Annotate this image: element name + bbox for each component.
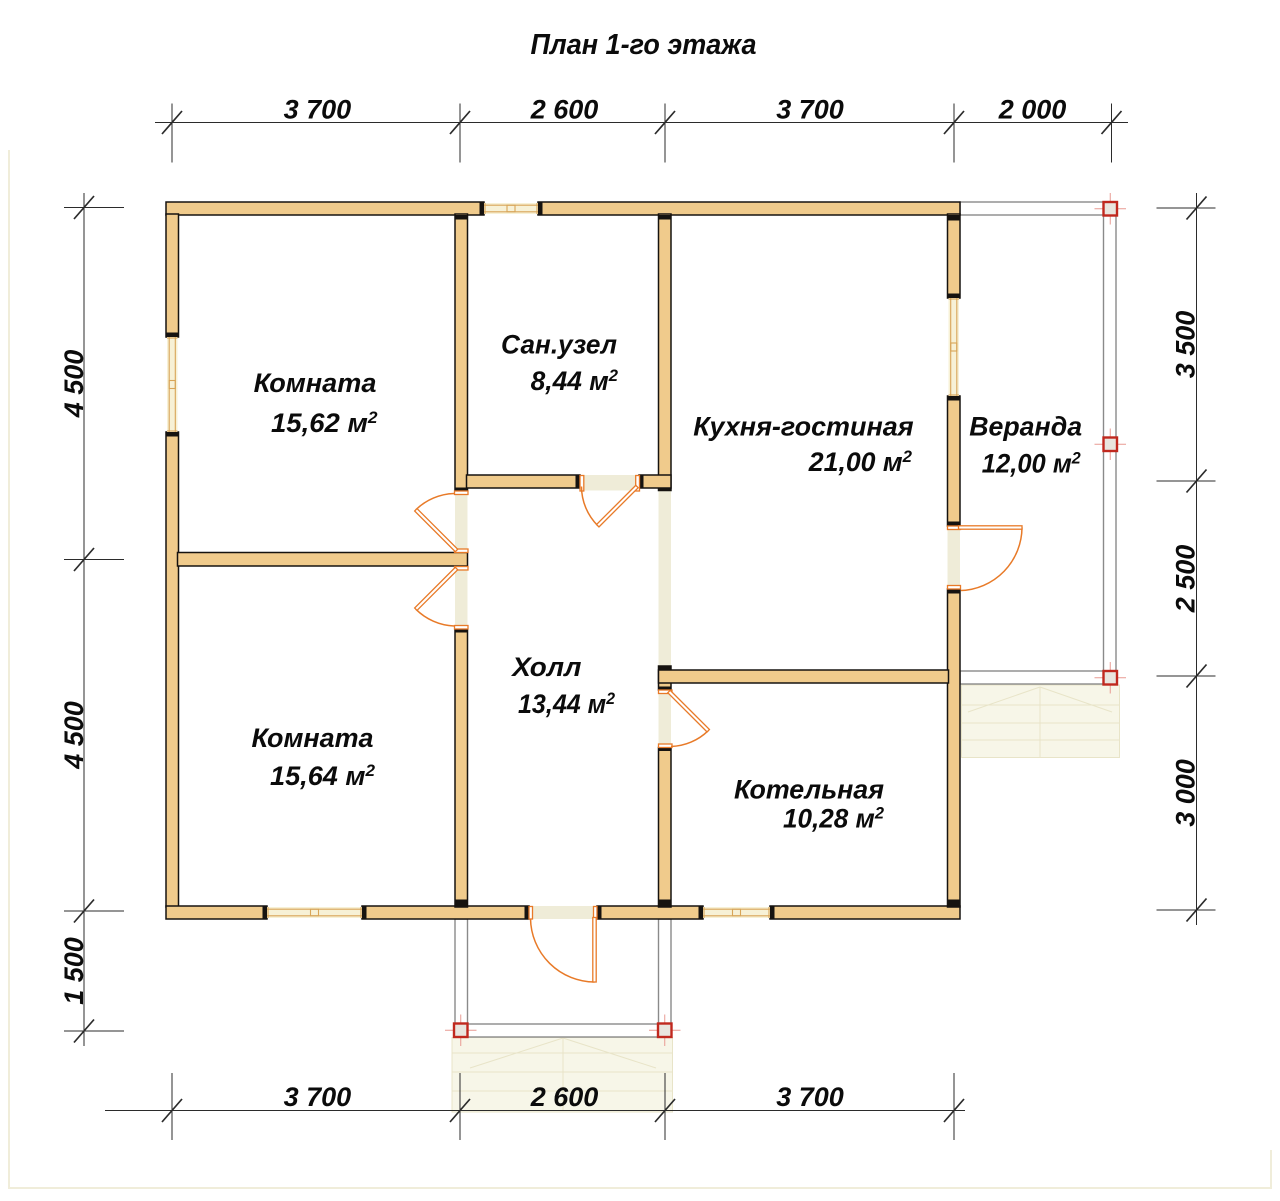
svg-text:3 700: 3 700 [284, 1082, 352, 1112]
svg-text:Сан.узел: Сан.узел [501, 330, 617, 360]
svg-text:4 500: 4 500 [59, 350, 89, 419]
svg-text:15,62 м2: 15,62 м2 [271, 408, 378, 438]
svg-text:1 500: 1 500 [59, 937, 89, 1005]
svg-text:2 600: 2 600 [530, 1082, 599, 1112]
svg-text:Веранда: Веранда [969, 412, 1082, 442]
svg-text:3 700: 3 700 [776, 1082, 844, 1112]
svg-text:План 1-го этажа: План 1-го этажа [531, 29, 757, 61]
svg-text:2 500: 2 500 [1171, 545, 1201, 614]
svg-text:Котельная: Котельная [734, 775, 884, 805]
svg-text:Комната: Комната [254, 368, 377, 398]
svg-text:4 500: 4 500 [59, 701, 89, 770]
svg-text:3 700: 3 700 [284, 95, 352, 125]
svg-text:Кухня-гостиная: Кухня-гостиная [693, 411, 913, 441]
svg-text:2 600: 2 600 [530, 95, 599, 125]
svg-text:Комната: Комната [252, 723, 374, 753]
svg-text:Холл: Холл [510, 652, 581, 682]
svg-text:3 000: 3 000 [1171, 759, 1201, 827]
svg-text:3 500: 3 500 [1171, 311, 1201, 379]
svg-text:3 700: 3 700 [776, 95, 844, 125]
svg-text:8,44 м2: 8,44 м2 [531, 366, 619, 396]
svg-text:13,44 м2: 13,44 м2 [518, 689, 615, 719]
svg-text:2 000: 2 000 [998, 95, 1067, 125]
svg-text:21,00 м2: 21,00 м2 [808, 447, 913, 477]
svg-text:10,28 м2: 10,28 м2 [783, 804, 885, 834]
svg-text:15,64 м2: 15,64 м2 [270, 761, 376, 791]
svg-text:12,00 м2: 12,00 м2 [982, 449, 1081, 479]
